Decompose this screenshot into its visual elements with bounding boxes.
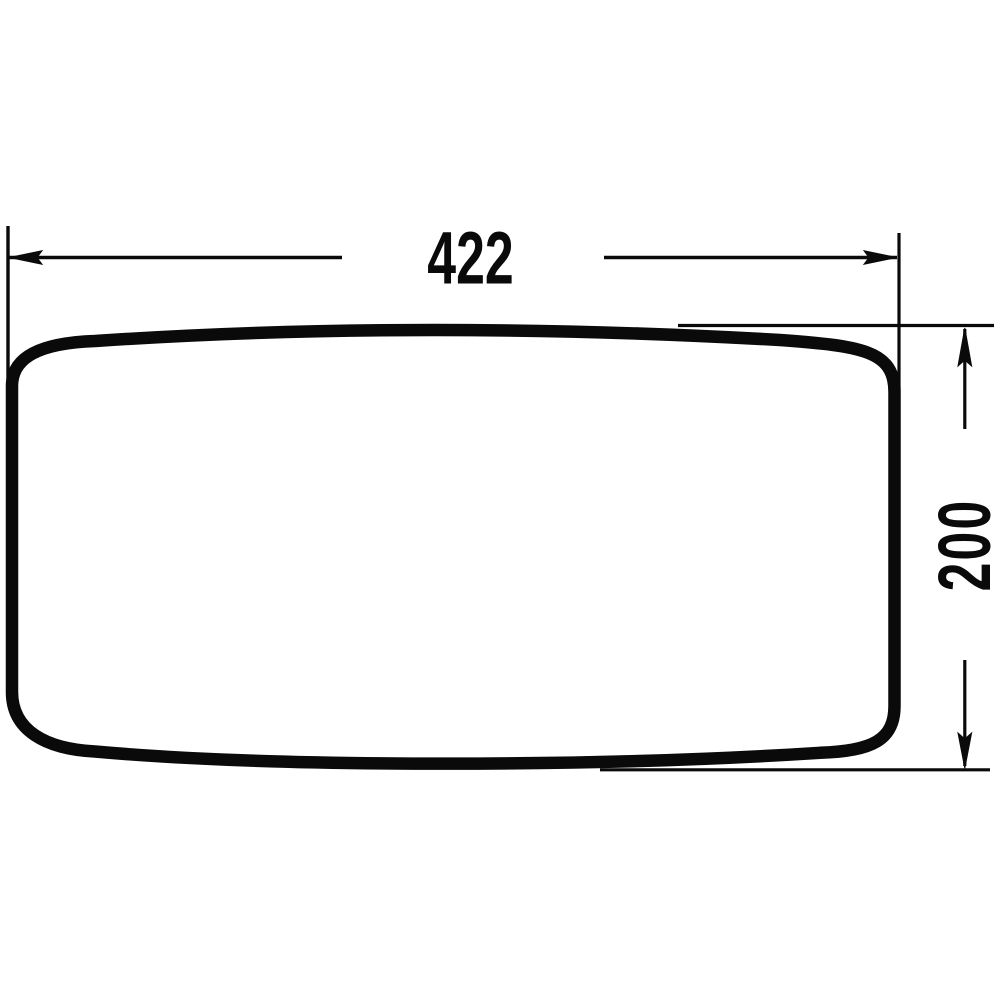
svg-text:200: 200 [923,499,1000,592]
svg-text:422: 422 [427,216,513,299]
